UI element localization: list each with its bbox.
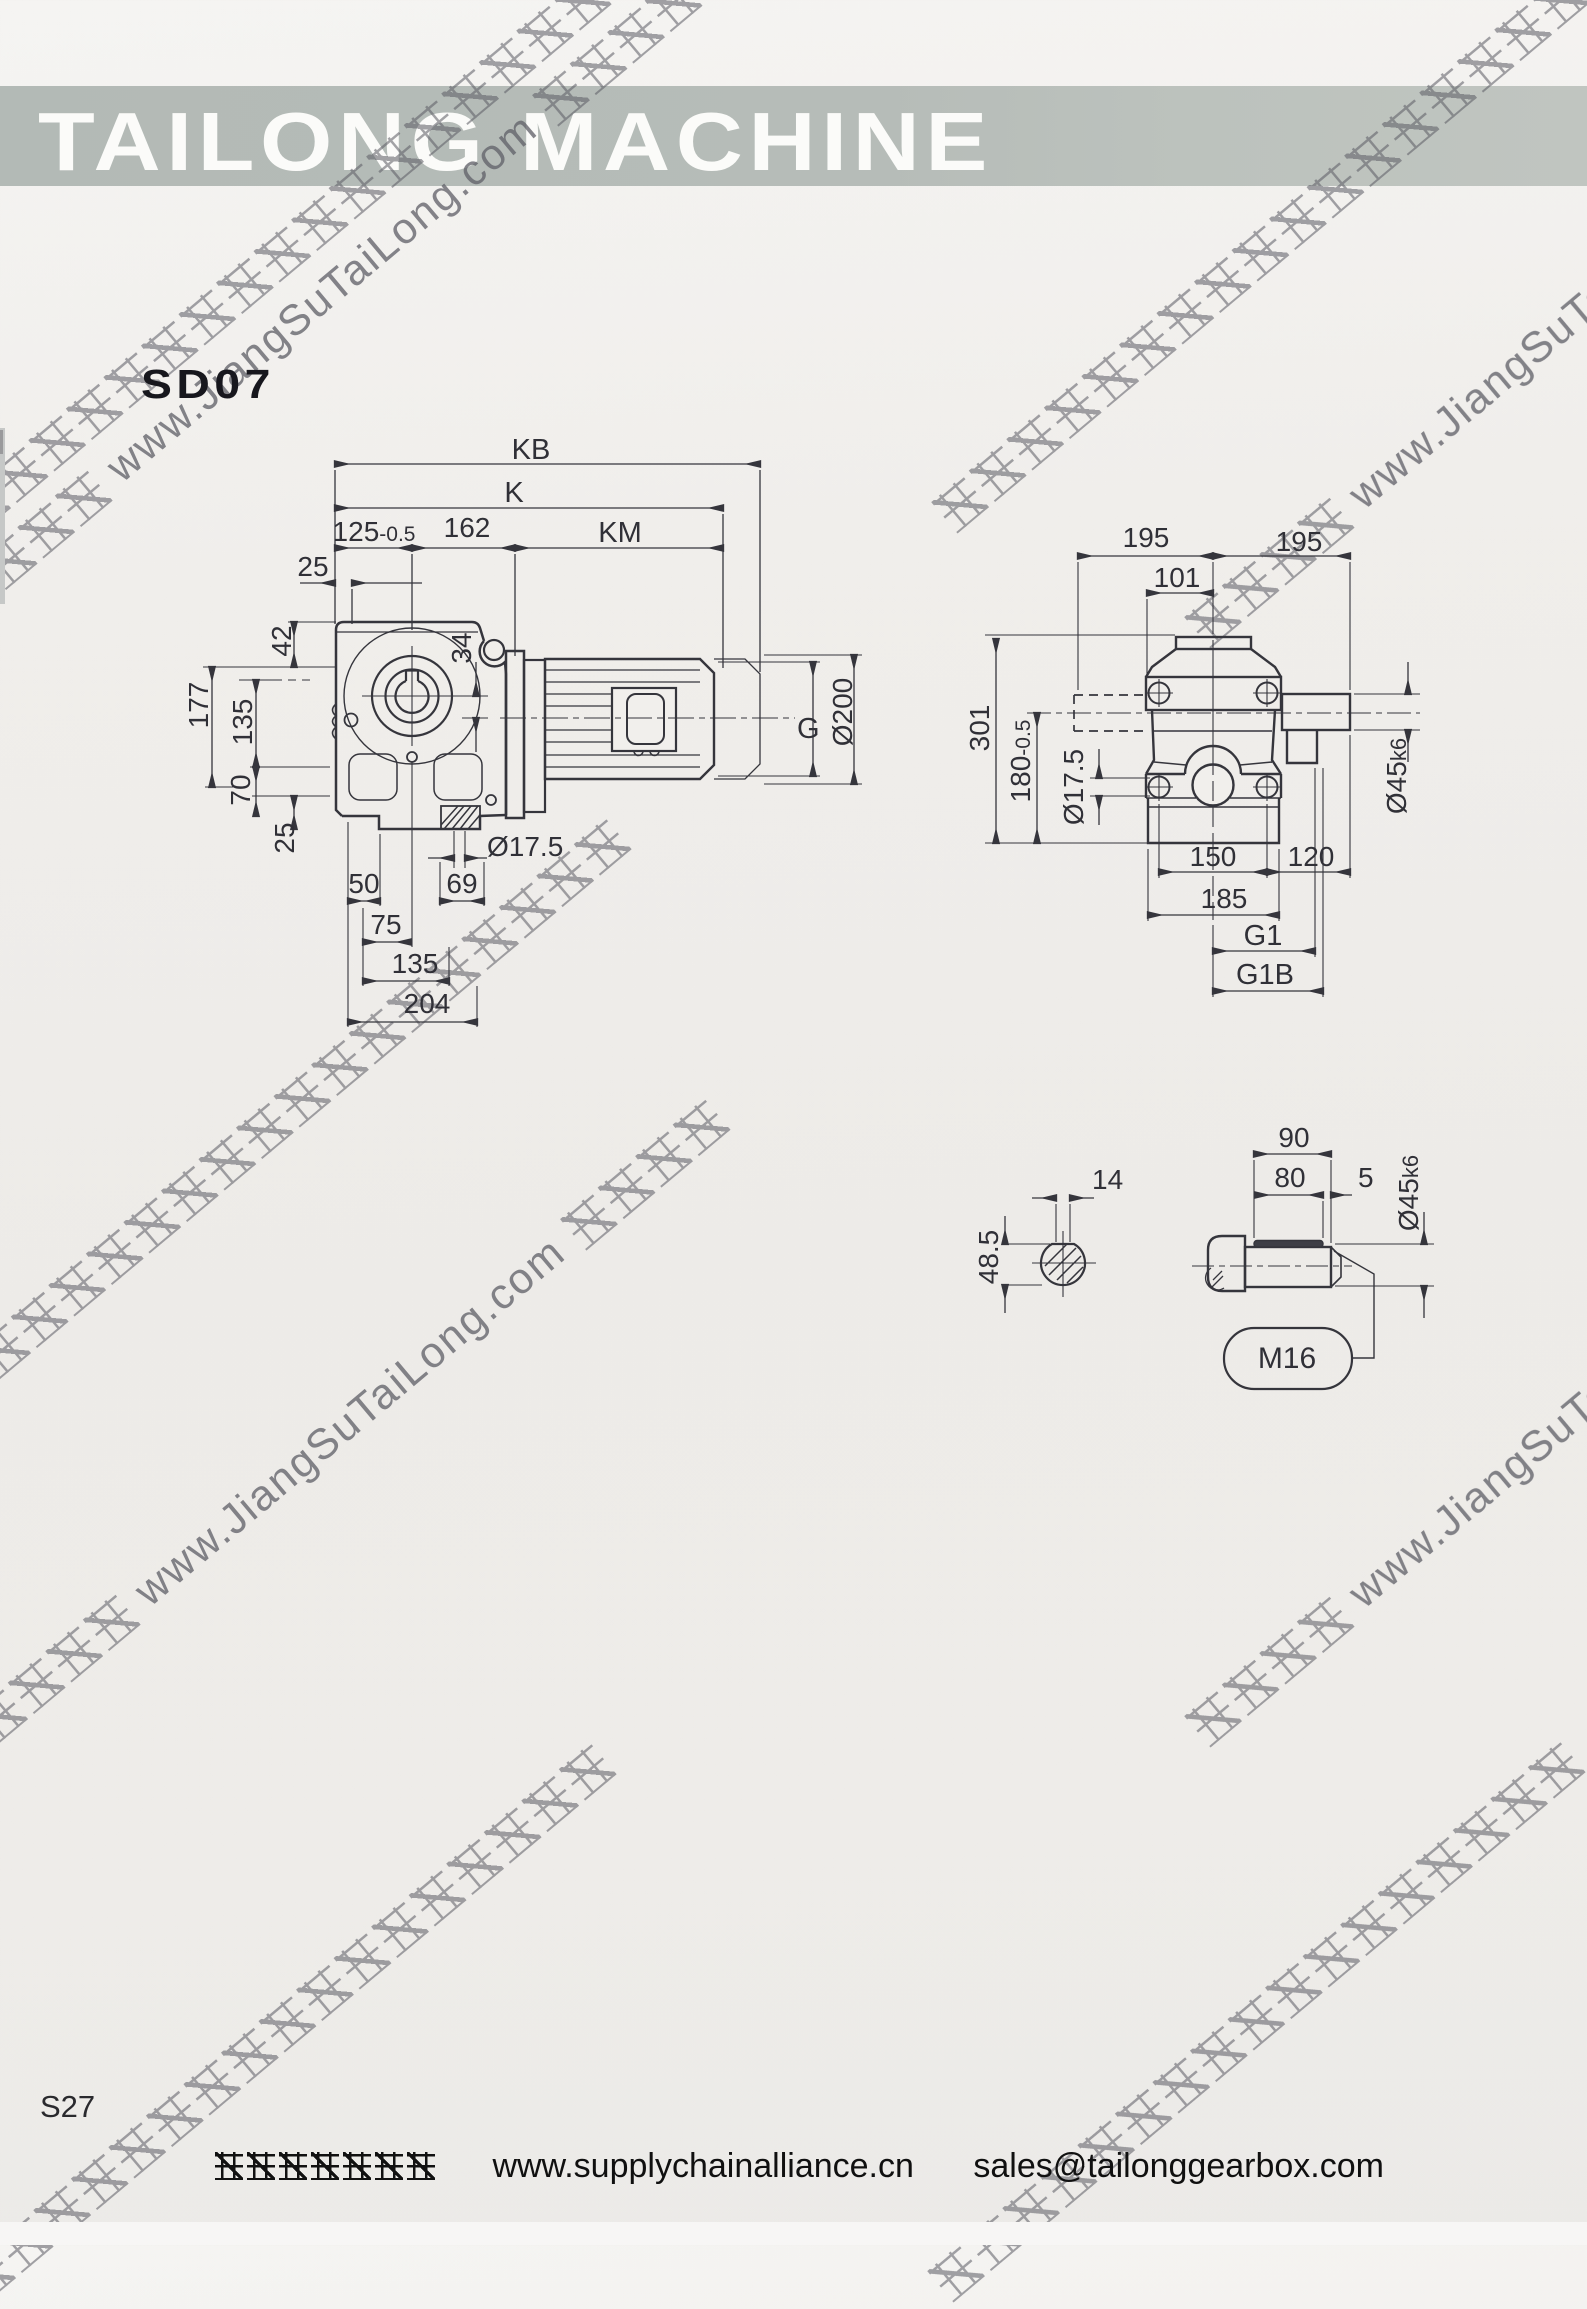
svg-text:50: 50 <box>348 868 379 899</box>
svg-text:Ø17.5: Ø17.5 <box>487 831 563 862</box>
svg-text:34: 34 <box>446 632 477 663</box>
svg-text:101: 101 <box>1154 562 1201 593</box>
svg-text:195: 195 <box>1276 526 1323 557</box>
svg-text:48.5: 48.5 <box>973 1230 1004 1285</box>
svg-text:14: 14 <box>1092 1164 1123 1195</box>
svg-text:70: 70 <box>225 774 256 805</box>
svg-text:180-0.5: 180-0.5 <box>1005 720 1036 803</box>
svg-text:301: 301 <box>964 705 995 752</box>
svg-text:5: 5 <box>1358 1162 1374 1193</box>
svg-text:135: 135 <box>392 948 439 979</box>
svg-text:80: 80 <box>1274 1162 1305 1193</box>
svg-text:42: 42 <box>266 625 297 656</box>
svg-text:120: 120 <box>1288 841 1335 872</box>
svg-text:KM: KM <box>598 517 642 549</box>
svg-text:125-0.5: 125-0.5 <box>333 516 416 547</box>
svg-text:195: 195 <box>1123 522 1170 553</box>
svg-text:G: G <box>797 713 820 745</box>
svg-text:M16: M16 <box>1258 1342 1316 1375</box>
svg-text:75: 75 <box>370 909 401 940</box>
svg-text:69: 69 <box>446 868 477 899</box>
svg-text:25: 25 <box>297 551 328 582</box>
svg-text:Ø45k6: Ø45k6 <box>1381 738 1412 814</box>
svg-text:G1B: G1B <box>1236 959 1294 991</box>
svg-text:177: 177 <box>183 682 214 729</box>
svg-text:25: 25 <box>269 822 300 853</box>
svg-text:Ø17.5: Ø17.5 <box>1058 749 1089 825</box>
svg-text:90: 90 <box>1278 1122 1309 1153</box>
svg-text:Ø200: Ø200 <box>827 678 858 747</box>
svg-text:150: 150 <box>1190 841 1237 872</box>
svg-text:KB: KB <box>512 434 551 466</box>
svg-text:K: K <box>504 477 524 509</box>
svg-text:185: 185 <box>1201 883 1248 914</box>
svg-text:162: 162 <box>444 512 491 543</box>
svg-text:G1: G1 <box>1244 920 1283 952</box>
svg-text:135: 135 <box>227 699 258 746</box>
svg-text:204: 204 <box>404 988 451 1019</box>
svg-text:Ø45k6: Ø45k6 <box>1393 1155 1424 1231</box>
